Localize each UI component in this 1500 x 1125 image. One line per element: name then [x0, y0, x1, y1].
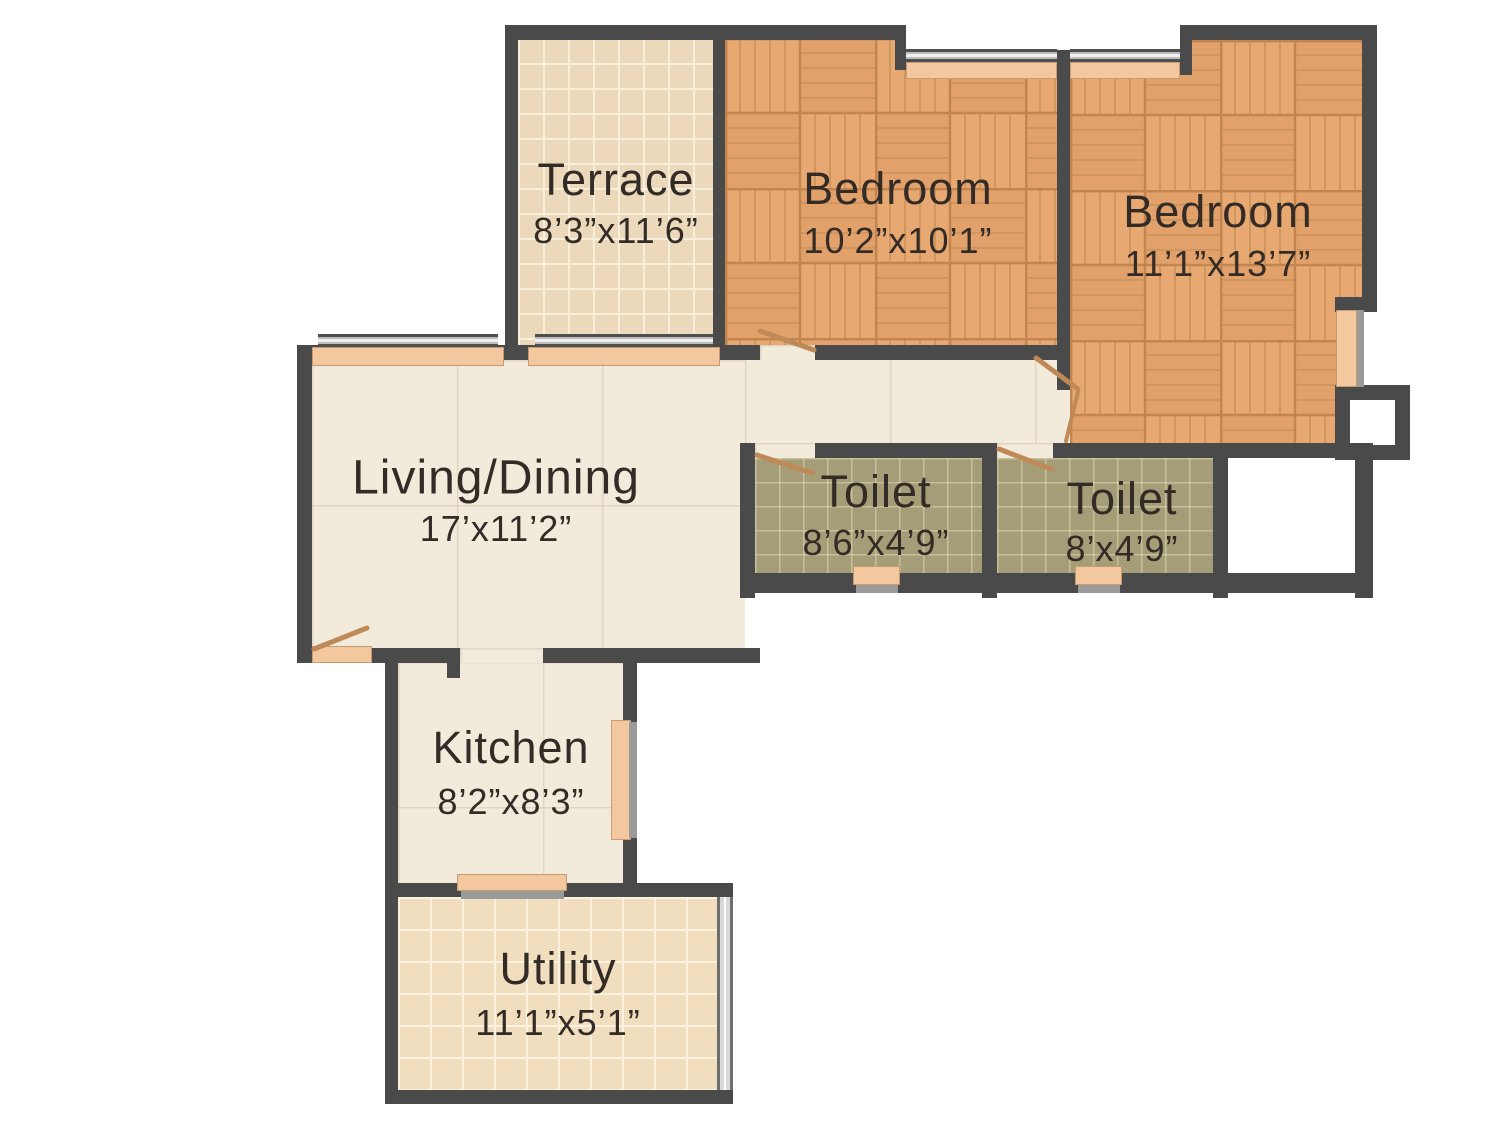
toilet-2-dims: 8’x4’9”	[1065, 528, 1178, 570]
terrace-label: Terrace	[537, 154, 694, 206]
bedroom-2-door-swing	[1066, 392, 1078, 441]
bedroom-2-dims: 11’1”x13’7”	[1125, 243, 1311, 285]
floor-plan: Terrace 8’3”x11’6” Bedroom 10’2”x10’1” B…	[0, 0, 1500, 1125]
kitchen-label: Kitchen	[432, 722, 589, 774]
door-swing-lines	[0, 0, 1500, 1125]
toilet-1-door-leaf	[757, 455, 812, 473]
living-dining-label: Living/Dining	[352, 451, 640, 506]
entrance-door-leaf	[314, 628, 367, 649]
terrace-dims: 8’3”x11’6”	[533, 210, 698, 252]
utility-dims: 11’1”x5’1”	[475, 1002, 640, 1044]
toilet-2-door-leaf	[999, 449, 1051, 469]
toilet-2-label: Toilet	[1066, 473, 1177, 525]
bedroom-1-label: Bedroom	[803, 163, 993, 215]
bedroom-2-label: Bedroom	[1123, 186, 1313, 238]
toilet-1-label: Toilet	[820, 466, 931, 518]
utility-label: Utility	[500, 943, 617, 995]
bedroom-1-door-leaf	[760, 331, 814, 350]
living-dining-dims: 17’x11’2”	[420, 508, 572, 550]
bedroom-2-door-leaf	[1036, 358, 1078, 389]
kitchen-dims: 8’2”x8’3”	[437, 781, 584, 823]
bedroom-1-dims: 10’2”x10’1”	[803, 220, 992, 262]
toilet-1-dims: 8’6”x4’9”	[802, 522, 949, 564]
